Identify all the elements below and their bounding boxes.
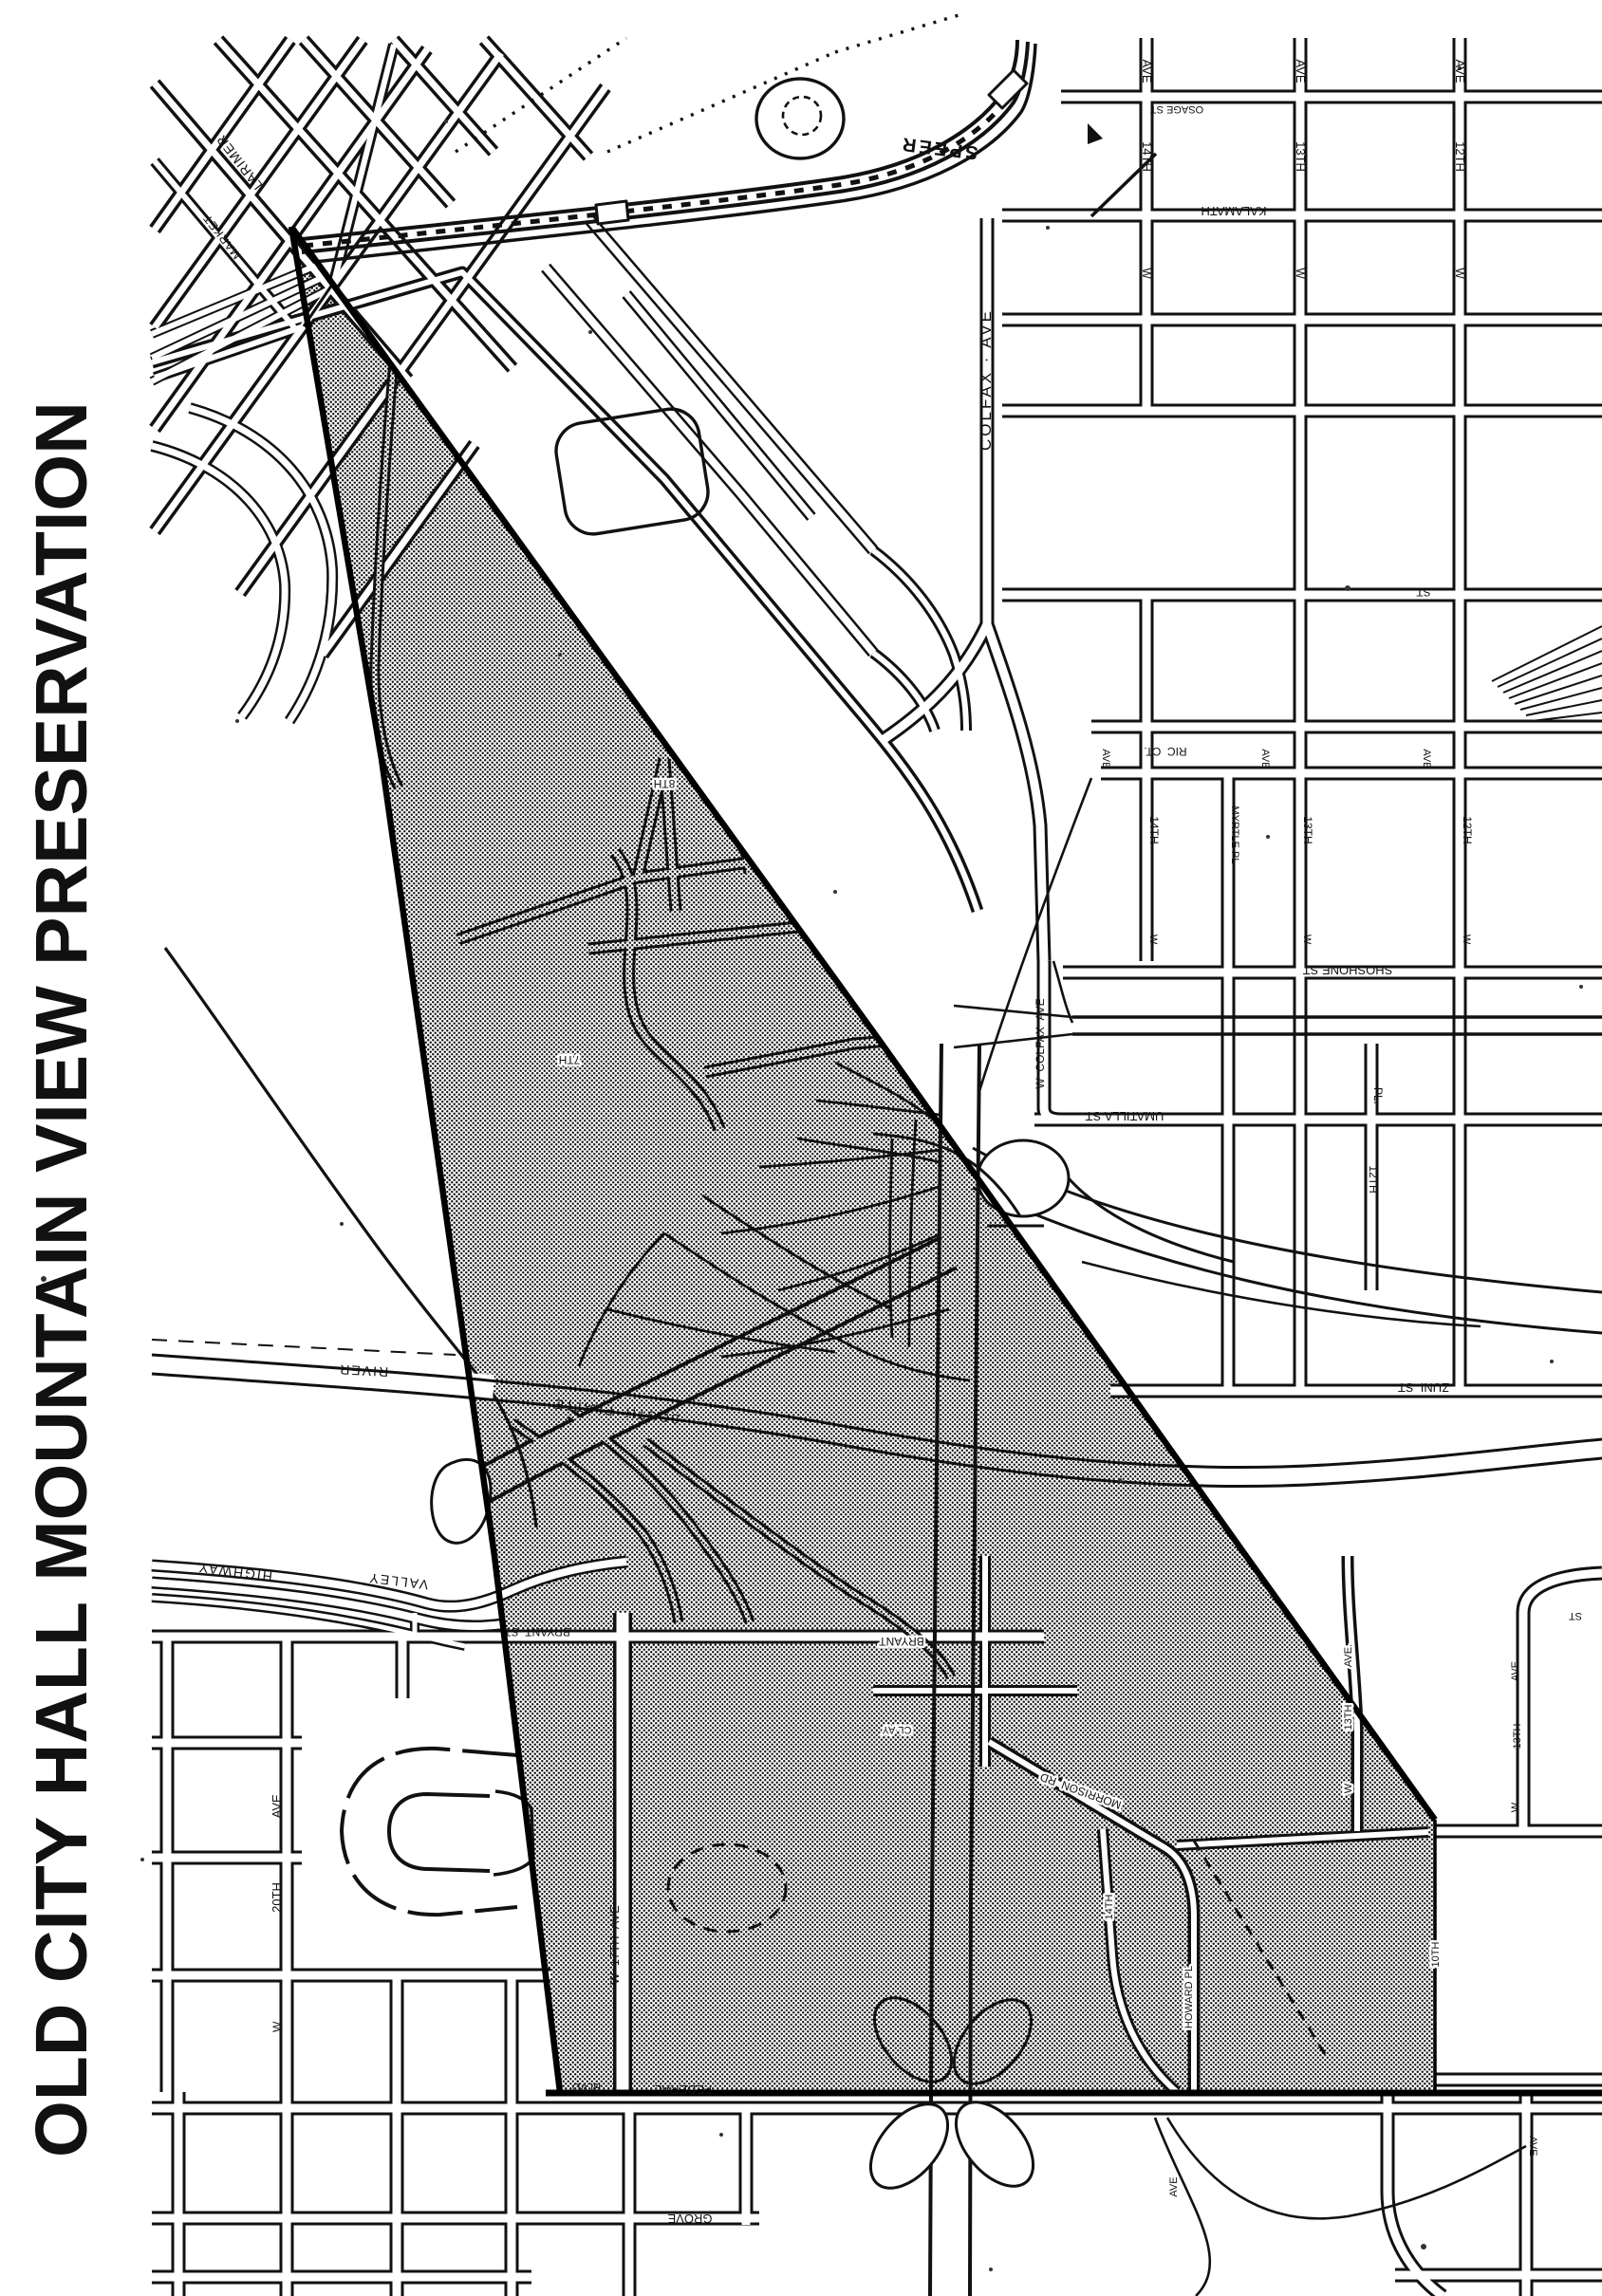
- svg-text:W: W: [1343, 1783, 1354, 1793]
- svg-text:AVE.: AVE.: [1510, 1658, 1521, 1681]
- svg-text:12TH: 12TH: [1367, 1165, 1380, 1193]
- svg-text:BLVD: BLVD: [571, 2081, 601, 2094]
- svg-text:FEDERAL: FEDERAL: [655, 2083, 712, 2097]
- svg-text:W COLFAX AVE: W COLFAX AVE: [1034, 998, 1047, 1088]
- svg-text:W: W: [1301, 935, 1313, 945]
- svg-text:ZUNI ST: ZUNI ST: [1398, 1380, 1449, 1395]
- svg-text:12TH: 12TH: [1453, 141, 1467, 172]
- svg-text:W: W: [1140, 268, 1153, 279]
- svg-text:12TH: 12TH: [1461, 816, 1474, 843]
- svg-text:10TH: 10TH: [1430, 1941, 1442, 1967]
- svg-text:CL AY: CL AY: [882, 1724, 912, 1735]
- svg-text:AVE: AVE: [1453, 59, 1467, 83]
- svg-text:GROVE: GROVE: [667, 2212, 712, 2226]
- svg-text:AVE: AVE: [1294, 59, 1308, 83]
- svg-text:W 17TH AVE: W 17TH AVE: [607, 1905, 622, 1985]
- svg-text:AVE: AVE: [1259, 749, 1271, 768]
- svg-text:AVE.: AVE.: [270, 1791, 284, 1819]
- svg-text:RIVER: RIVER: [338, 1362, 389, 1380]
- svg-text:13TH: 13TH: [1301, 816, 1314, 843]
- svg-text:13TH: 13TH: [1512, 1723, 1523, 1749]
- svg-text:W: W: [1453, 268, 1466, 279]
- svg-text:BRYANT: BRYANT: [879, 1635, 924, 1648]
- svg-text:BRYANT ST: BRYANT ST: [504, 1625, 570, 1639]
- svg-text:SHOSHONE ST: SHOSHONE ST: [1303, 963, 1393, 977]
- svg-text:AVE: AVE: [1140, 59, 1154, 83]
- svg-text:7TH: 7TH: [559, 1053, 581, 1066]
- svg-text:W: W: [1461, 935, 1472, 945]
- svg-text:HOWARD PL: HOWARD PL: [1183, 1966, 1195, 2028]
- svg-text:RIC CT.: RIC CT.: [1144, 745, 1186, 758]
- svg-text:13TH: 13TH: [1343, 1704, 1354, 1730]
- svg-text:AVE: AVE: [1168, 2176, 1180, 2196]
- svg-text:14TH: 14TH: [1140, 141, 1154, 172]
- svg-text:AVE: AVE: [1421, 749, 1432, 768]
- svg-text:W: W: [1510, 1802, 1521, 1812]
- svg-text:COLFAX · AVE: COLFAX · AVE: [977, 308, 995, 451]
- svg-text:ST: ST: [1569, 1610, 1582, 1621]
- svg-text:13TH: 13TH: [1294, 141, 1308, 172]
- svg-text:8TH: 8TH: [654, 777, 676, 790]
- svg-text:W.: W.: [270, 2019, 284, 2032]
- svg-text:HIGHWAY: HIGHWAY: [196, 1560, 273, 1584]
- svg-text:20TH: 20TH: [270, 1882, 284, 1913]
- svg-text:14TH: 14TH: [1104, 1894, 1115, 1919]
- svg-text:AVE.: AVE.: [1343, 1644, 1354, 1667]
- svg-text:UMATILLA ST: UMATILLA ST: [1086, 1109, 1164, 1123]
- svg-text:PL.: PL.: [1371, 1087, 1385, 1104]
- svg-text:MYRTLE PL: MYRTLE PL: [1229, 806, 1240, 864]
- svg-text:AVE: AVE: [1100, 749, 1111, 768]
- svg-text:OSAGE ST: OSAGE ST: [1150, 103, 1204, 115]
- svg-text:W: W: [1294, 268, 1307, 279]
- svg-text:W: W: [1147, 935, 1159, 945]
- svg-text:KALAMATH: KALAMATH: [1201, 204, 1266, 218]
- svg-text:AVE: AVE: [1527, 2136, 1538, 2156]
- svg-text:14TH: 14TH: [1147, 816, 1161, 843]
- svg-text:ST: ST: [1416, 585, 1431, 599]
